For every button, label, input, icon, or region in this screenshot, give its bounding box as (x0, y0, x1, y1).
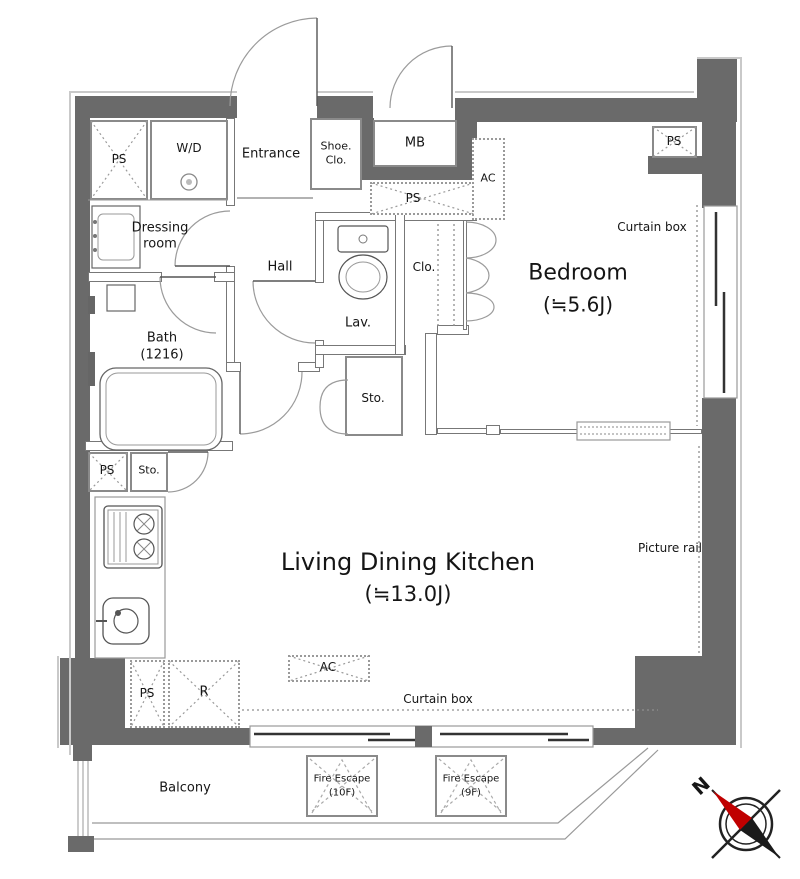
ps-label-top-right: PS (667, 135, 682, 149)
stove (104, 506, 162, 568)
ps-label-mid: PS (406, 192, 421, 206)
shoe-closet-label-1: Shoe. (321, 141, 352, 154)
pillar-top-right (697, 58, 737, 122)
fire-escape-hatch-10f (306, 755, 378, 817)
washer-dryer-box (150, 120, 228, 200)
wall-hall-lav-upper (315, 213, 324, 283)
wall-below-closet (425, 333, 437, 435)
wall-corner-bottom-left (60, 658, 125, 745)
ldk-name: Living Dining Kitchen (281, 549, 535, 577)
bath-door-arc (160, 277, 216, 333)
vanity (92, 206, 140, 268)
wall-dressing-bath-right (214, 272, 235, 282)
fire-escape-10f-label-2: (10F) (329, 787, 355, 799)
wall-bath-bottom (85, 441, 233, 451)
dressing-door-arc (175, 211, 230, 266)
bathtub (100, 368, 222, 450)
compass-north-label: N (689, 774, 715, 801)
mb-label: MB (405, 137, 425, 152)
shoe-closet-label-2: Clo. (326, 155, 347, 168)
wall-lav-closet (395, 213, 405, 355)
partition-post (486, 425, 500, 435)
wall-hall-bottom-left (226, 362, 241, 372)
refrigerator-label: R (199, 686, 208, 701)
lav-door-arc (253, 281, 315, 343)
lav-label: Lav. (345, 317, 371, 332)
balcony-partition (78, 761, 88, 836)
storage-center-label: Sto. (361, 392, 384, 406)
sliding-door-pocket (577, 422, 670, 440)
window-mullion (415, 726, 432, 747)
ldk-window (250, 726, 593, 747)
ldk-size: (≒13.0J) (365, 582, 452, 606)
wall-lav-bottom (315, 345, 406, 355)
hall-label: Hall (268, 261, 293, 276)
kitchen-counter (95, 497, 165, 658)
fire-escape-10f-label-1: Fire Escape (314, 773, 371, 785)
wall-corner-bottom-right (635, 656, 736, 745)
entrance-label: Entrance (242, 148, 300, 163)
wall-right-upper (702, 122, 736, 208)
compass (712, 790, 780, 858)
storage-bifold-arcs (320, 380, 348, 434)
toilet (338, 226, 388, 299)
closet-bifold-arcs (466, 222, 496, 321)
wall-right-lower (702, 398, 736, 660)
partition-bedroom-ldk-3 (668, 429, 702, 434)
balcony-label: Balcony (159, 782, 211, 797)
door-leaves (160, 18, 452, 452)
closet-front-line (463, 220, 467, 330)
floor-plan: PS W/D Entrance Shoe. Clo. MB PS AC PS C… (0, 0, 800, 879)
compass-needle-south (740, 818, 779, 857)
door-arcs (160, 18, 496, 492)
storage-left-door-arc (168, 452, 208, 492)
partition-bedroom-ldk-2 (500, 429, 578, 434)
bath-size: (1216) (140, 349, 183, 364)
closet-label: Clo. (413, 261, 436, 275)
dressing-room-label-2: room (143, 238, 177, 253)
ac-label-ldk: AC (320, 661, 336, 675)
wd-label: W/D (176, 142, 201, 156)
compass-needle-north (713, 791, 752, 830)
kitchen-sink (103, 598, 149, 644)
bath-fixtures (88, 285, 222, 450)
ps-label-mid-left: PS (100, 464, 115, 478)
dashed-lines (242, 205, 699, 710)
ldk-door-arc (240, 372, 302, 434)
wall-dressing-bath-left (88, 272, 162, 282)
ps-label-bottom: PS (140, 687, 155, 701)
dressing-room-label-1: Dressing (132, 222, 189, 237)
fire-escape-9f-label-2: (9F) (461, 787, 481, 799)
wall-ps-notch (648, 156, 702, 174)
curtain-box-label-bedroom: Curtain box (617, 221, 686, 235)
bedroom-window (704, 206, 737, 398)
wall-top-mid (317, 96, 373, 118)
bath-counter (107, 285, 135, 311)
fire-escape-9f-label-1: Fire Escape (443, 773, 500, 785)
ps-label-top-left: PS (112, 153, 127, 167)
wall-top-right (455, 98, 702, 122)
partition-bedroom-ldk-1 (437, 428, 488, 434)
wall-top-left (75, 96, 237, 118)
bedroom-name: Bedroom (528, 260, 628, 285)
fire-escape-hatch-9f (435, 755, 507, 817)
kitchen-fixtures (95, 497, 165, 658)
wall-left (75, 96, 90, 660)
curtain-box-label-ldk: Curtain box (403, 693, 472, 707)
bedroom-size: (≒5.6J) (543, 294, 613, 317)
bath-name: Bath (147, 332, 177, 347)
picture-rail-label: Picture rail (638, 542, 702, 556)
wall-bottom-right-strip (593, 728, 641, 745)
storage-mid-left-label: Sto. (138, 465, 159, 478)
ps-shaft-mid (370, 182, 475, 215)
mb-door-arc (390, 46, 452, 108)
ac-label-bedroom: AC (480, 173, 495, 186)
entrance-door-arc (230, 18, 317, 106)
